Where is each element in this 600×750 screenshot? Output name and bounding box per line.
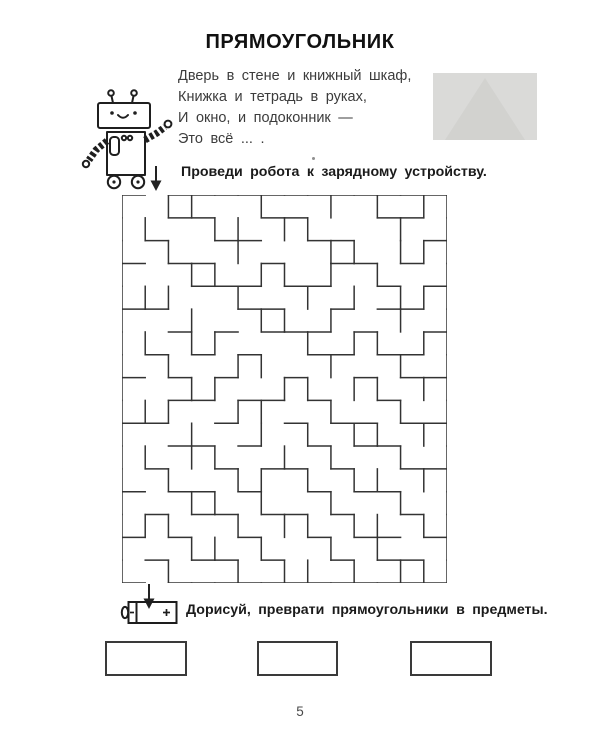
maze xyxy=(122,195,447,583)
poem-line: Дверь в стене и книжный шкаф, xyxy=(178,66,448,87)
maze-entry-arrow-icon xyxy=(148,165,164,191)
empty-rectangle-1 xyxy=(105,641,187,676)
faded-triangle-shape xyxy=(445,78,525,140)
empty-rectangle-2 xyxy=(257,641,338,676)
battery-icon xyxy=(119,598,181,627)
worksheet-page: ПРЯМОУГОЛЬНИК Дверь в стене и книжный шк… xyxy=(0,0,600,750)
poem-line: И окно, и подоконник — xyxy=(178,108,448,129)
poem-line: Книжка и тетрадь в руках, xyxy=(178,87,448,108)
poem-line: Это всё ... . xyxy=(178,129,448,150)
maze-instruction: Проведи робота к зарядному устройству. xyxy=(181,164,496,180)
page-number: 5 xyxy=(0,704,600,719)
faded-photo xyxy=(433,73,537,140)
empty-rectangle-3 xyxy=(410,641,492,676)
poem-riddle: Дверь в стене и книжный шкаф, Книжка и т… xyxy=(178,66,448,150)
scan-speck xyxy=(312,157,315,160)
page-title: ПРЯМОУГОЛЬНИК xyxy=(0,31,600,54)
draw-instruction: Дорисуй, преврати прямоугольники в предм… xyxy=(186,602,586,618)
